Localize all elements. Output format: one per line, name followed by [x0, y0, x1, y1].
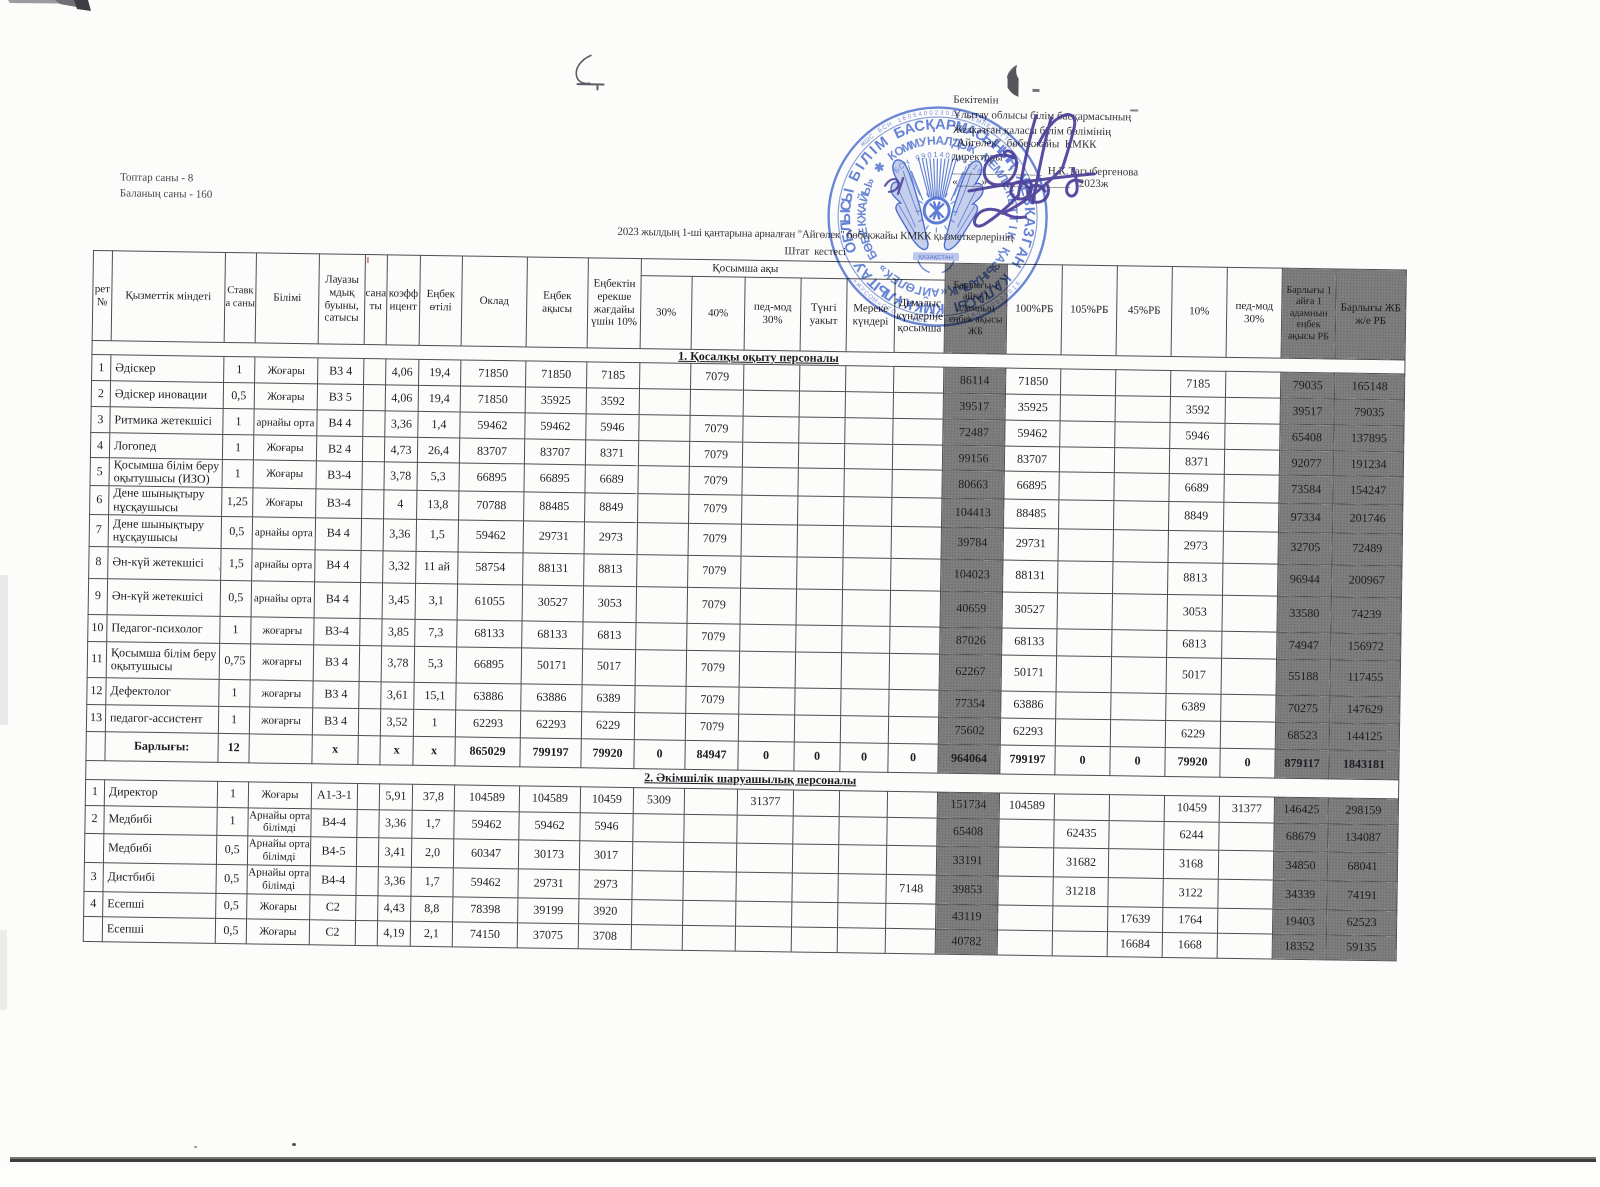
svg-text:ҚАЗАҚСТАН: ҚАЗАҚСТАН: [919, 255, 953, 262]
svg-text:«: «: [940, 285, 948, 300]
svg-text:Б: Б: [945, 317, 950, 324]
svg-text:Н: Н: [955, 316, 961, 324]
svg-text:•: •: [902, 312, 906, 319]
svg-text:С: С: [922, 317, 928, 325]
svg-text:•: •: [935, 318, 937, 325]
